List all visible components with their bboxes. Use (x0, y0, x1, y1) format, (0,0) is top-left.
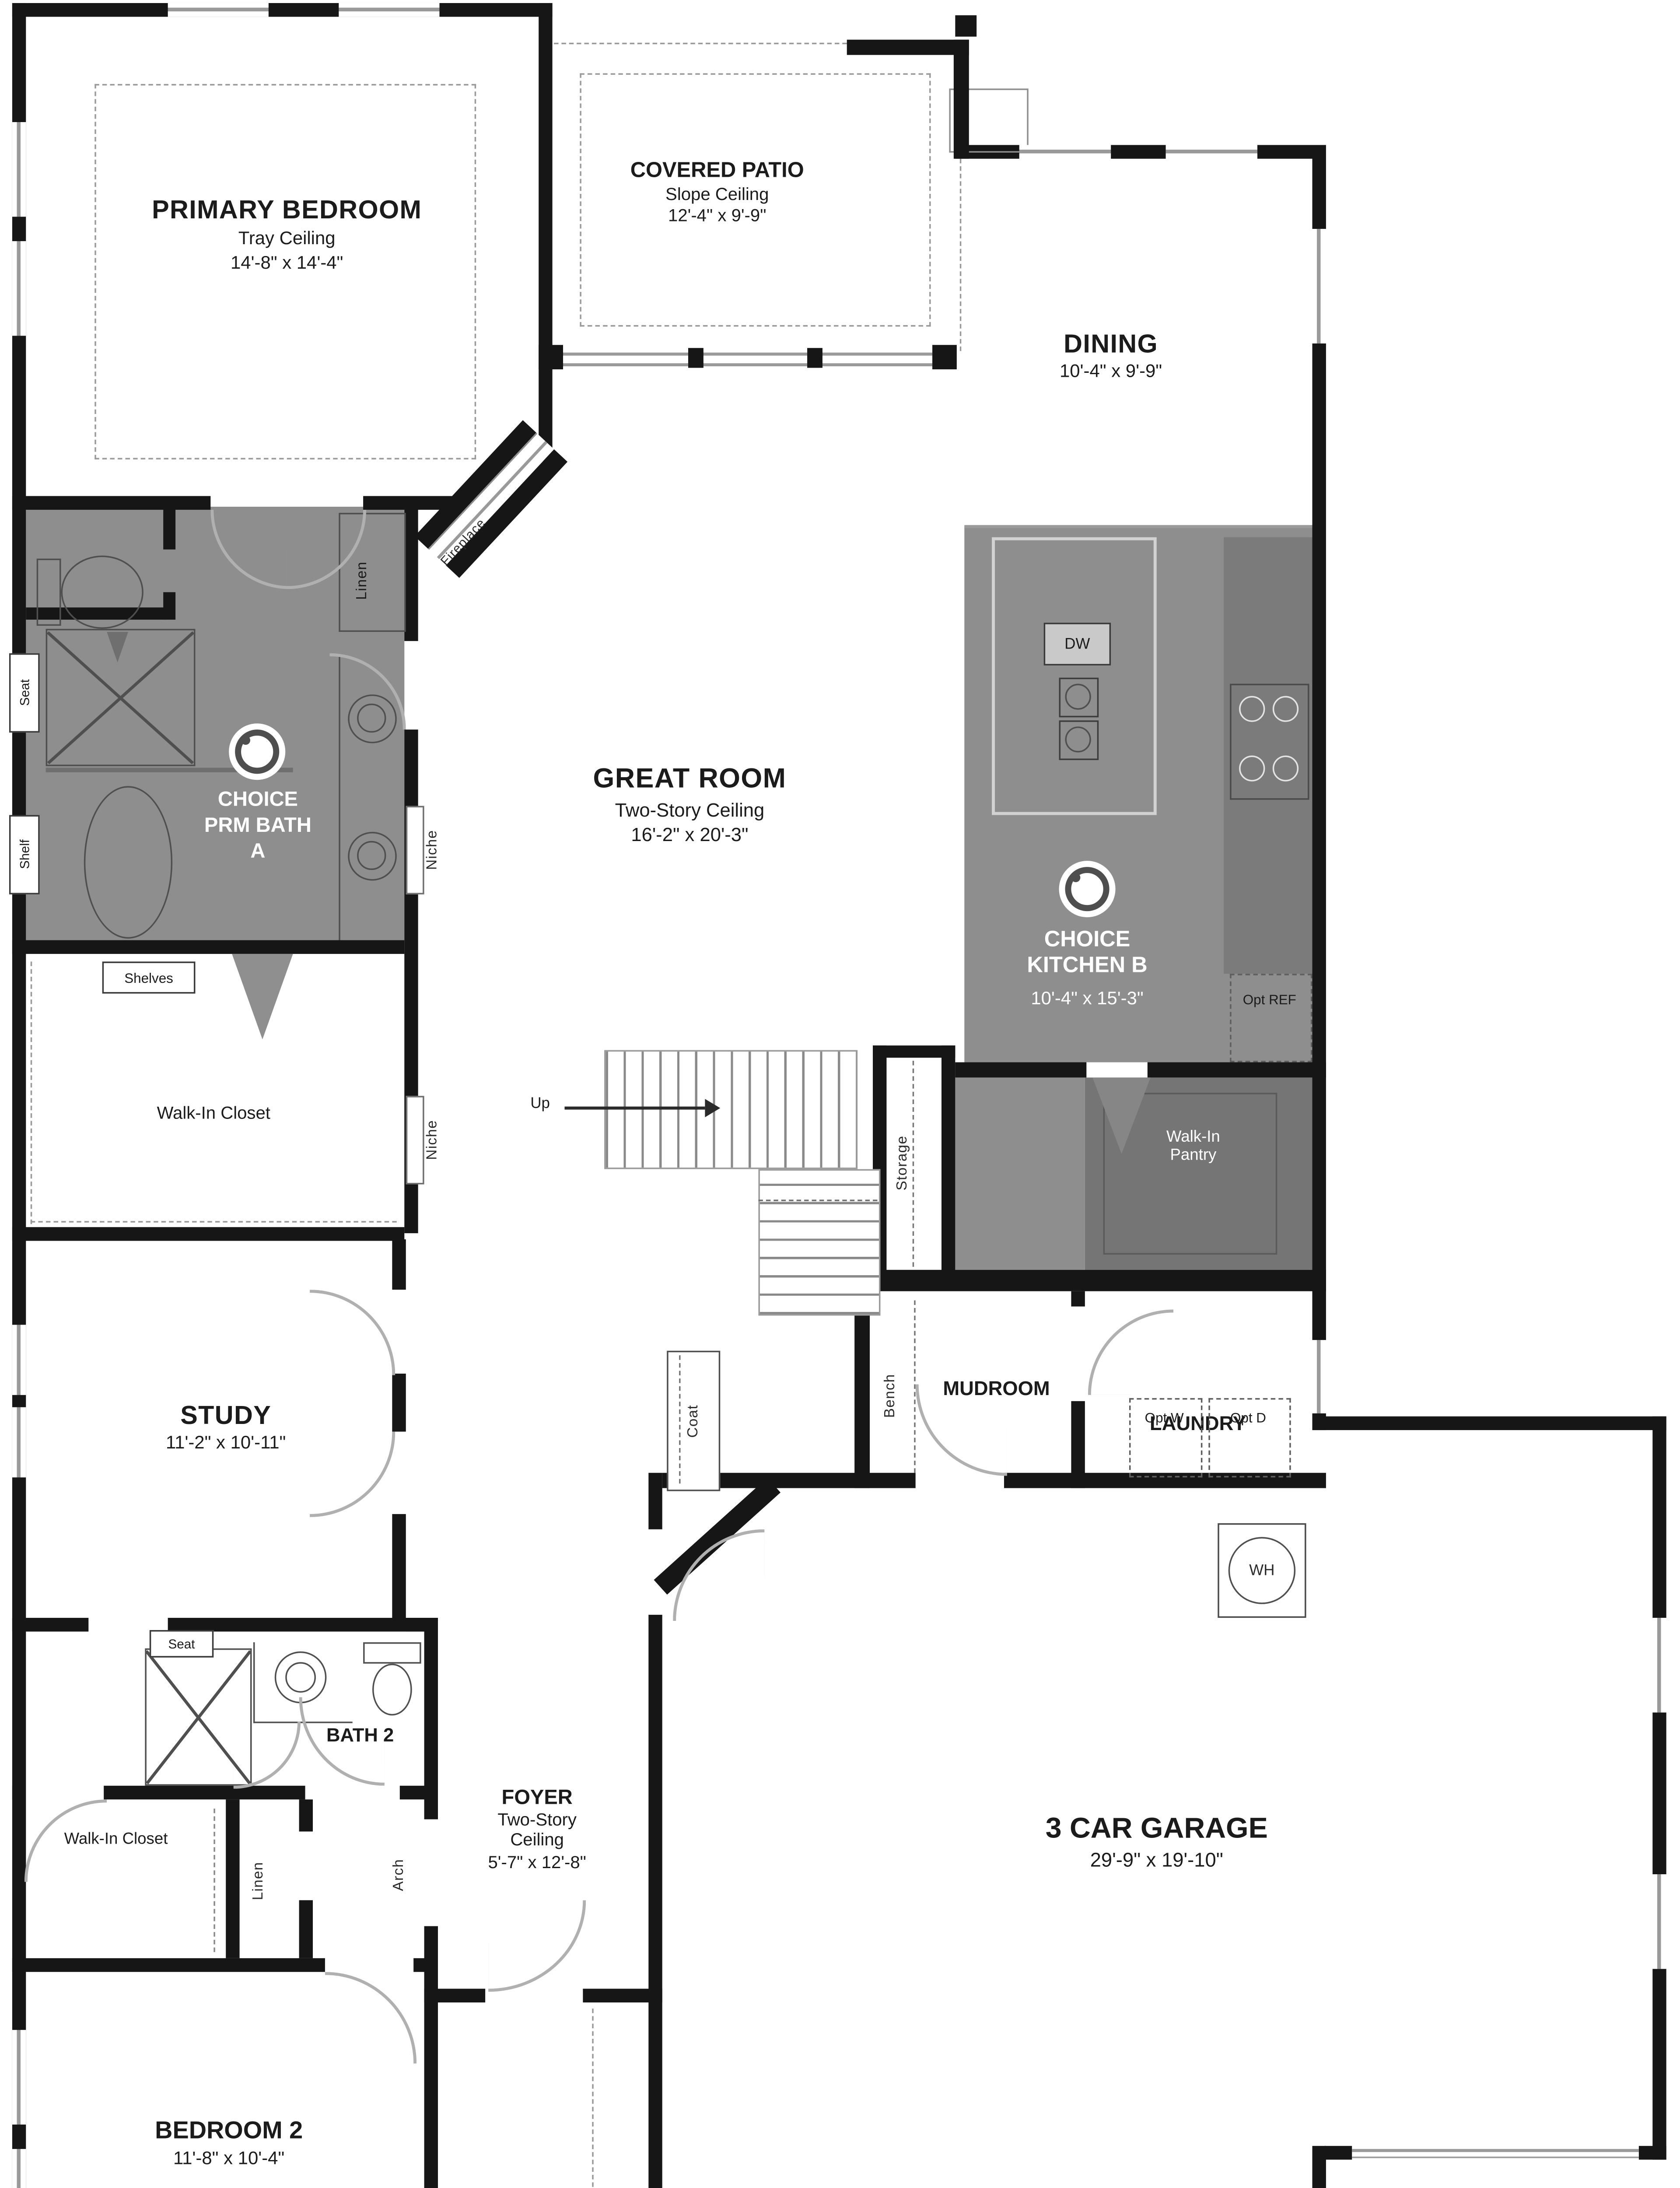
room-dims: 14'-8" x 14'-4" (104, 253, 470, 274)
wall (1111, 145, 1166, 158)
room-ceiling: Tray Ceiling (104, 229, 470, 250)
window (1312, 1340, 1326, 1413)
storage-dashed (913, 1061, 914, 1267)
window (339, 3, 439, 17)
wall (12, 1958, 325, 1972)
sliding-door-line (563, 363, 932, 366)
room-dims: 16'-2" x 20'-3" (522, 824, 857, 846)
chimney-block (955, 15, 976, 37)
wall (12, 3, 553, 17)
opt-dryer-label: Opt D (1208, 1410, 1288, 1428)
water-heater-box: WH (1218, 1523, 1306, 1618)
dishwasher-label: DW (1064, 636, 1090, 652)
window (12, 2149, 26, 2188)
wall (299, 1900, 313, 1958)
window (12, 241, 26, 336)
porch-roof-dashed (592, 2009, 593, 2188)
room-name: COVERED PATIO (626, 159, 809, 183)
door-arc (310, 1290, 395, 1375)
door-arc (916, 1384, 1007, 1476)
door-arc (488, 1900, 586, 1992)
wall (168, 1618, 438, 1631)
walk-in-closet2-label: Walk-In Closet (55, 1831, 177, 1850)
wall (941, 1045, 955, 1274)
closet-door-leaf (232, 954, 293, 1039)
garage-door-line (1352, 2149, 1639, 2152)
patio-edge-dashed-right (960, 159, 961, 351)
room-dims: 5'-7" x 12'-8" (415, 1854, 659, 1874)
kitchen-dims: 10'-4" x 15'-3" (1000, 989, 1175, 1010)
kitchen-hall-floor (955, 1077, 1085, 1269)
arch-label: Arch (391, 1834, 407, 1914)
floor-plan: Fireplace Seat Shelf Linen CHOICE PRM BA… (0, 0, 1680, 2188)
room-dims: 11'-8" x 10'-4" (61, 2149, 397, 2170)
wall (392, 1514, 406, 1630)
window (1312, 229, 1326, 344)
linen-label: Linen (354, 537, 371, 623)
wall (1312, 2146, 1326, 2188)
choice-option-icon (229, 723, 285, 780)
wall (12, 1618, 88, 1631)
wall (12, 1786, 24, 1799)
wall (1148, 1062, 1326, 1078)
room-ceiling: Two-Story Ceiling (522, 799, 857, 821)
stairs-arrow-line (564, 1107, 705, 1110)
door-arc (299, 1697, 385, 1785)
window (12, 122, 26, 217)
room-name: PRIMARY BEDROOM (104, 195, 470, 225)
garage-label: 3 CAR GARAGE 29'-9" x 19'-10" (958, 1813, 1355, 1872)
wall (1652, 1969, 1666, 2160)
niche-label: Niche (424, 1099, 441, 1181)
room-name: BEDROOM 2 (61, 2118, 397, 2146)
seat2-label: Seat (168, 1636, 195, 1652)
wall (1312, 1417, 1666, 1430)
window (12, 1407, 26, 1477)
niche-label: Niche (424, 809, 441, 891)
wall (1324, 2146, 1352, 2160)
patio-post (539, 345, 563, 369)
foyer-label: FOYER Two-Story Ceiling 5'-7" x 12'-8" (415, 1786, 659, 1874)
door-arc (1088, 1310, 1173, 1395)
wall (954, 40, 969, 159)
seat-label: Seat (17, 680, 32, 706)
window (12, 2030, 26, 2125)
wall (854, 1291, 870, 1488)
pantry-label: Walk-In Pantry (1144, 1129, 1242, 1166)
wall (12, 1227, 404, 1241)
shelves-label: Shelves (124, 970, 173, 985)
sink (275, 1652, 327, 1704)
wall (847, 40, 969, 55)
wall (648, 1615, 662, 2188)
opt-ref-box (1230, 974, 1312, 1062)
window (1652, 1618, 1666, 1712)
bench-label: Bench (882, 1343, 899, 1450)
storage-label: Storage (894, 1087, 911, 1239)
wall (226, 1799, 239, 1958)
coat-label: Coat (685, 1378, 702, 1463)
range (1230, 684, 1309, 800)
wall (539, 3, 552, 461)
room-name: STUDY (88, 1401, 363, 1431)
seat-label-box: Seat (9, 653, 40, 733)
linen2-label: Linen (250, 1837, 267, 1923)
wall (424, 1989, 486, 2002)
room-name: DINING (973, 330, 1248, 359)
kitchen-boundary-line (964, 525, 1312, 528)
island-sink (1059, 720, 1099, 760)
patio-edge-dashed-top (554, 43, 847, 44)
choice-option-icon (1059, 861, 1116, 917)
dining-label: DINING 10'-4" x 9'-9" (973, 330, 1248, 383)
wall (1071, 1291, 1085, 1307)
wall (424, 1926, 438, 2188)
wall (955, 1062, 1086, 1078)
toilet-tank (37, 559, 61, 626)
toilet-tank (363, 1642, 421, 1664)
wall (299, 1799, 313, 1831)
closet-rod-dashed (31, 961, 32, 1224)
door-arc (234, 1722, 301, 1788)
room-ceiling: Slope Ceiling (626, 186, 809, 206)
room-name: GREAT ROOM (522, 763, 857, 795)
shelves-label-box: Shelves (102, 961, 196, 993)
up-label: Up (519, 1096, 562, 1113)
wall (1639, 2146, 1666, 2160)
wall (406, 1618, 438, 1631)
room-dims: 11'-2" x 10'-11" (88, 1434, 363, 1455)
wall (1312, 344, 1326, 1340)
wall (1652, 1712, 1666, 1874)
kitchen-island (992, 537, 1157, 815)
wall (104, 1786, 305, 1799)
stairs-cut-line (758, 1199, 877, 1201)
door-arc (673, 1529, 764, 1621)
pantry-door-leaf (1092, 1077, 1151, 1154)
room-ceiling: Two-Story Ceiling (476, 1812, 598, 1852)
water-heater-label: WH (1249, 1562, 1274, 1579)
shelf-label: Shelf (17, 840, 32, 870)
wall (1652, 1417, 1666, 1618)
window (1166, 145, 1257, 158)
room-name: 3 CAR GARAGE (958, 1813, 1355, 1847)
window (1019, 145, 1111, 158)
wall (392, 1374, 406, 1432)
kitchen-choice-label: CHOICE KITCHEN B (1000, 928, 1175, 981)
toilet-bowl (61, 556, 143, 629)
primary-bedroom-label: PRIMARY BEDROOM Tray Ceiling 14'-8" x 14… (104, 195, 470, 274)
wall (404, 507, 418, 641)
wall (583, 1989, 662, 2002)
wall (807, 348, 822, 368)
wall (163, 507, 175, 550)
stairs-arrow-head (705, 1099, 720, 1117)
coat-rod-dashed (679, 1355, 680, 1483)
great-room-label: GREAT ROOM Two-Story Ceiling 16'-2" x 20… (522, 763, 857, 845)
shelf-label-box: Shelf (9, 815, 40, 894)
wall (1312, 145, 1326, 229)
room-name: FOYER (415, 1786, 659, 1809)
patio-post (932, 345, 957, 369)
garage-door-line (1352, 2156, 1639, 2159)
stairs-lower (758, 1169, 880, 1316)
seat2-label-box: Seat (150, 1630, 213, 1658)
wall (392, 1239, 406, 1290)
bedroom2-label: BEDROOM 2 11'-8" x 10'-4" (61, 2118, 397, 2170)
dishwasher-box: DW (1044, 623, 1111, 666)
bath-choice-label: CHOICE PRM BATH A (198, 788, 317, 865)
closet-rod-dashed (213, 1809, 215, 1952)
wall (688, 348, 703, 368)
window (12, 1325, 26, 1395)
wall (648, 1473, 662, 1529)
sink (348, 832, 397, 881)
door-arc (325, 1972, 416, 2063)
opt-washer-label: Opt W (1129, 1410, 1199, 1428)
niche (406, 806, 424, 894)
room-dims: 29'-9" x 19'-10" (958, 1849, 1355, 1872)
wall (12, 940, 404, 954)
wall (1257, 145, 1312, 158)
wall (854, 1270, 1326, 1291)
closet-rod-dashed (31, 1221, 397, 1222)
walk-in-closet-label: Walk-In Closet (153, 1105, 275, 1125)
wall (163, 592, 175, 620)
window (168, 3, 269, 17)
room-dims: 12'-4" x 9'-9" (626, 208, 809, 228)
sliding-door-line (563, 353, 932, 356)
wall (12, 496, 210, 510)
covered-patio-label: COVERED PATIO Slope Ceiling 12'-4" x 9'-… (626, 159, 809, 228)
niche (406, 1096, 424, 1184)
study-label: STUDY 11'-2" x 10'-11" (88, 1401, 363, 1455)
island-sink (1059, 678, 1099, 718)
room-dims: 10'-4" x 9'-9" (973, 362, 1248, 383)
window (1652, 1874, 1666, 1969)
opt-ref-label: Opt REF (1230, 992, 1309, 1010)
shower-head (107, 632, 128, 663)
bathtub (84, 786, 172, 939)
wall (873, 1045, 955, 1058)
